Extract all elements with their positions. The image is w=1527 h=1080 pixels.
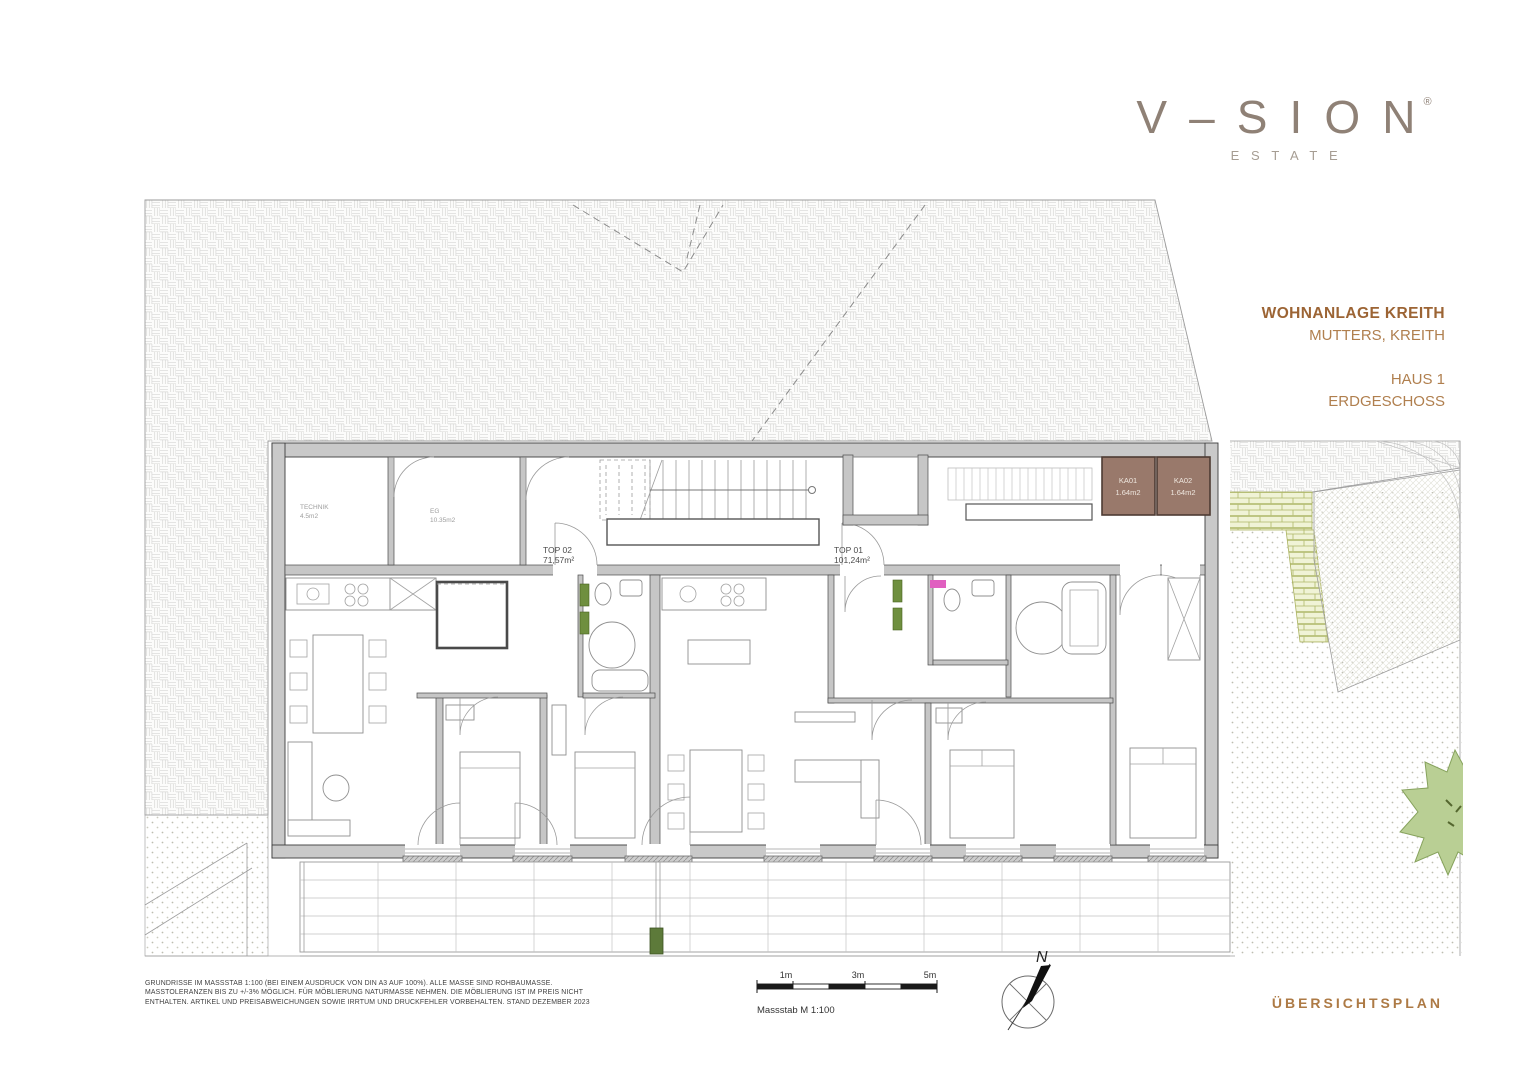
north-arrow: N — [1002, 949, 1054, 1030]
corridor-wall — [285, 564, 1205, 576]
terrace — [300, 862, 1230, 956]
storage-box-ka02: KA02 1.64m2 — [1157, 457, 1210, 515]
room-area-technik: 4.5m2 — [300, 513, 318, 520]
plan-sheet: V–SION® ESTATE WOHNANLAGE KREITH MUTTERS… — [0, 0, 1527, 1080]
apartment-top01 — [662, 575, 1200, 845]
apartment-top02 — [286, 575, 655, 845]
planter — [650, 928, 663, 954]
scale-tick-1m: 1m — [780, 970, 793, 980]
disclaimer: GRUNDRISSE IM MASSSTAB 1:100 (BEI EINEM … — [145, 979, 615, 1007]
unit-area-top02: 71,57m² — [543, 555, 574, 565]
scale-tick-5m: 5m — [924, 970, 937, 980]
unit-label-top02: TOP 02 — [543, 545, 572, 555]
storage-ka02-area: 1.64m2 — [1170, 488, 1195, 497]
plan-type-label: ÜBERSICHTSPLAN — [1272, 995, 1443, 1011]
north-label: N — [1036, 949, 1048, 966]
disclaimer-line-2: MASSTOLERANZEN BIS ZU +/-3% MÖGLICH. FÜR… — [145, 988, 615, 997]
storage-ka01-area: 1.64m2 — [1115, 488, 1140, 497]
disclaimer-line-1: GRUNDRISSE IM MASSSTAB 1:100 (BEI EINEM … — [145, 979, 615, 988]
scale-bar: 1m 3m 5m Massstab M 1:100 — [757, 970, 937, 1016]
disclaimer-line-3: ENTHALTEN. ARTIKEL UND PREISABWEICHUNGEN… — [145, 998, 615, 1007]
storage-ka02-id: KA02 — [1174, 476, 1192, 485]
room-label-technik: TECHNIK — [300, 504, 329, 511]
storage-ka01-id: KA01 — [1119, 476, 1137, 485]
floorplan-drawing: KA01 1.64m2 KA02 1.64m2 TECHNIK 4.5m2 EG… — [0, 0, 1527, 1080]
elevator-shaft — [843, 455, 928, 525]
building: KA01 1.64m2 KA02 1.64m2 TECHNIK 4.5m2 EG… — [272, 443, 1218, 867]
staircase — [600, 460, 819, 545]
north-needle — [1023, 965, 1051, 1008]
floor-grate — [948, 468, 1092, 520]
windows — [403, 797, 1206, 867]
scale-label: Massstab M 1:100 — [757, 1005, 835, 1016]
storage-box-ka01: KA01 1.64m2 — [1102, 457, 1155, 515]
unit-area-top01: 101,24m² — [834, 555, 870, 565]
scale-tick-3m: 3m — [852, 970, 865, 980]
room-label-eg: EG — [430, 508, 439, 515]
unit-label-top01: TOP 01 — [834, 545, 863, 555]
room-area-eg: 10.35m2 — [430, 517, 456, 524]
garden-right — [1228, 441, 1512, 956]
